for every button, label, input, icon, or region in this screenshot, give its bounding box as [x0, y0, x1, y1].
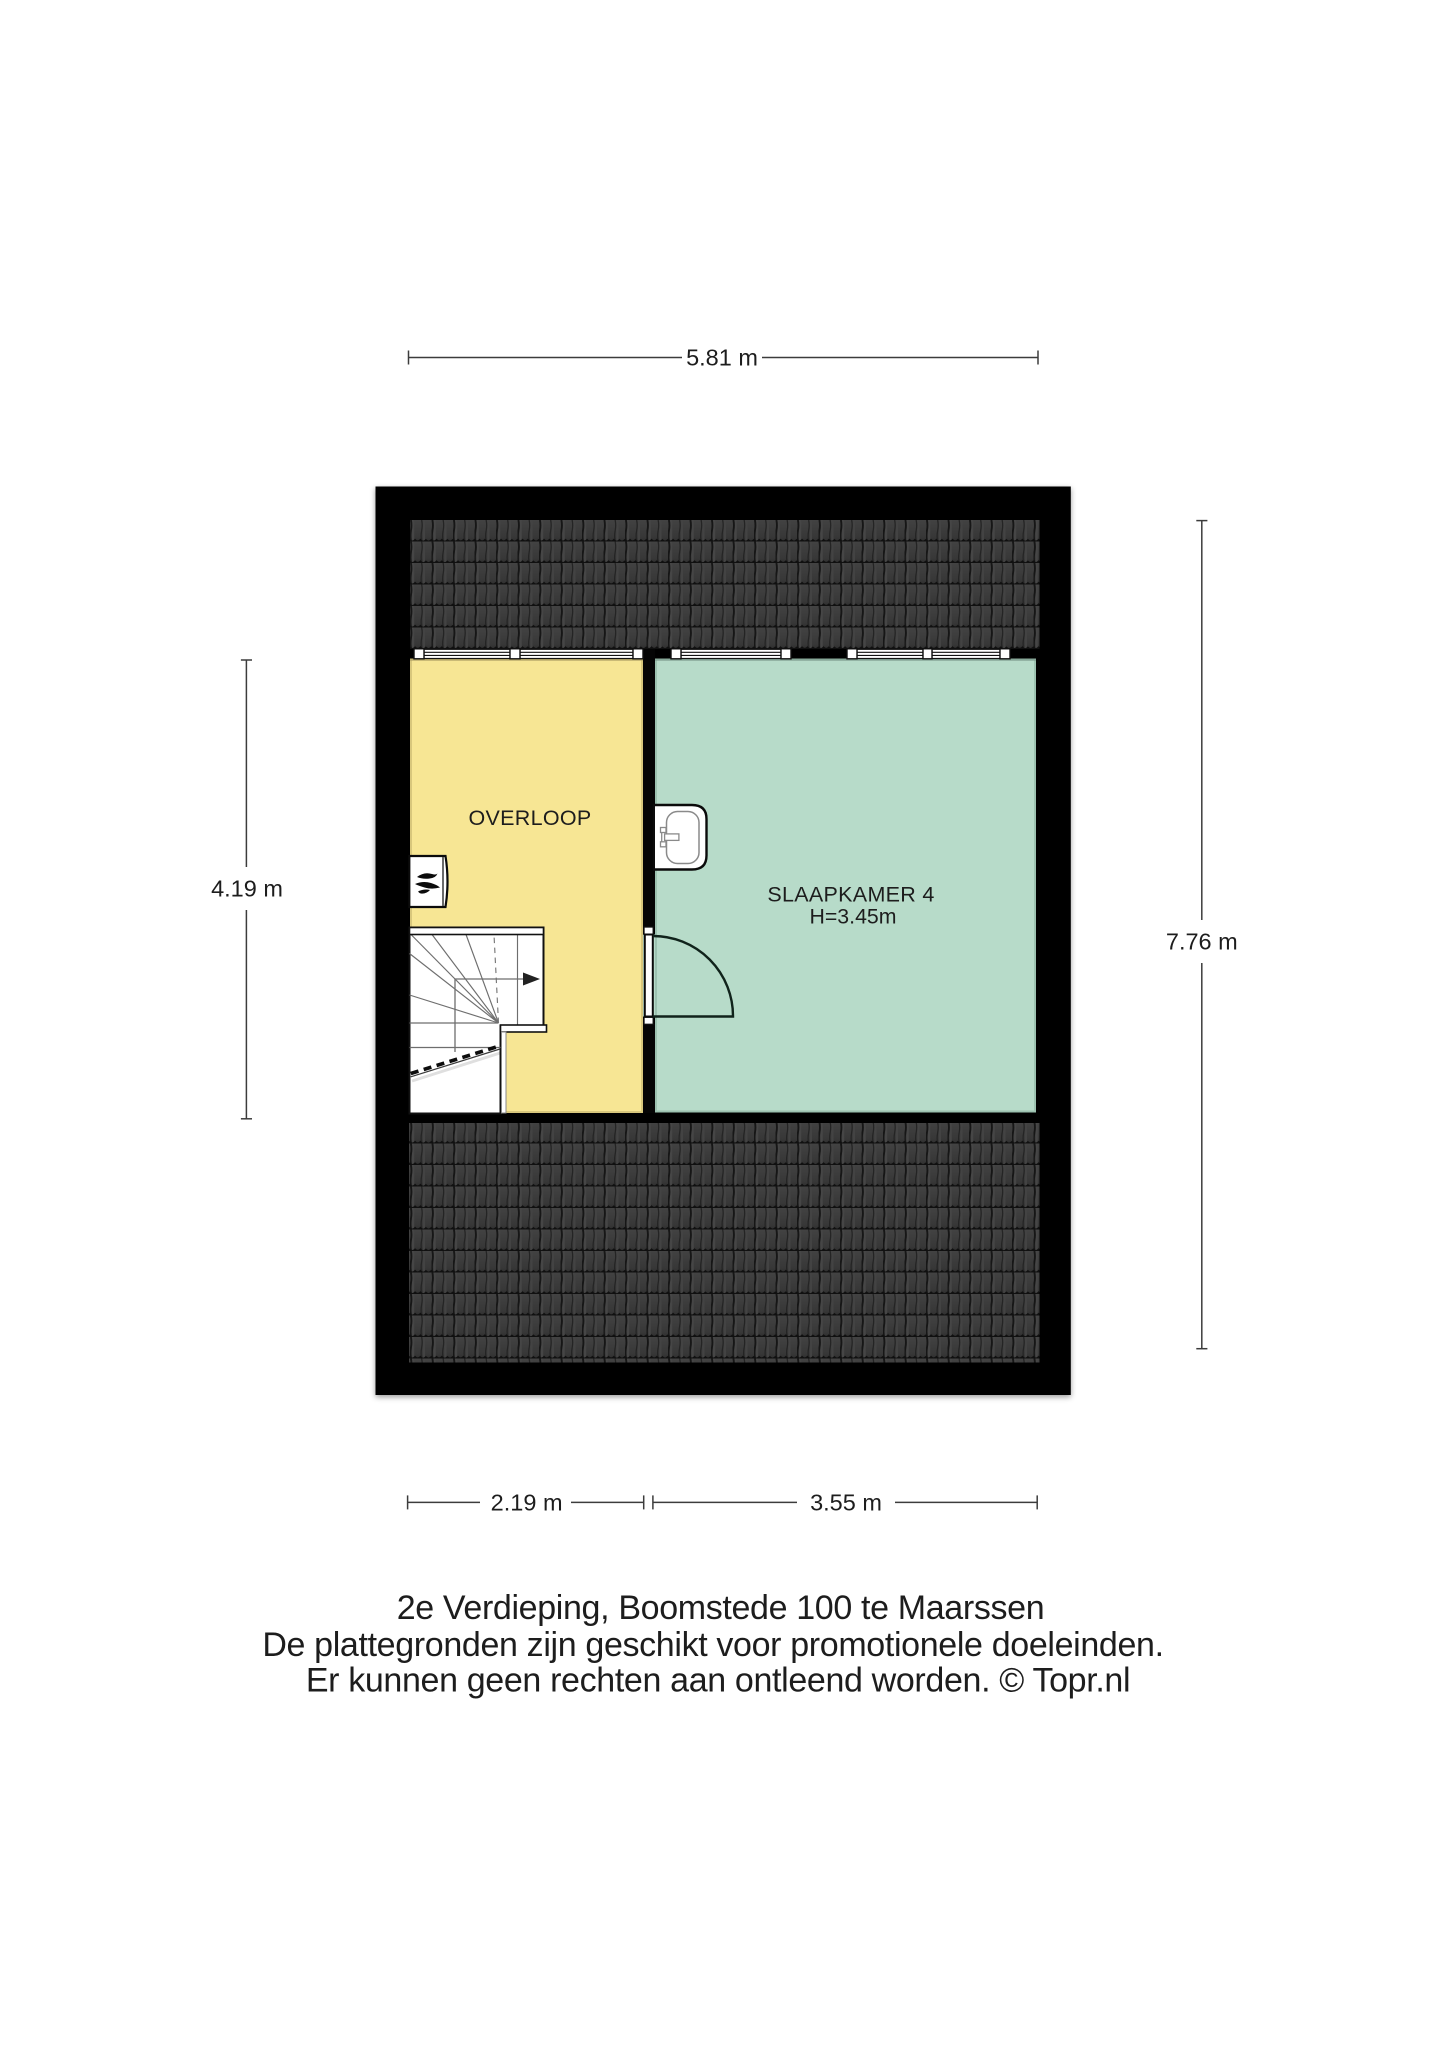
- svg-text:2e Verdieping, Boomstede 100 t: 2e Verdieping, Boomstede 100 te Maarssen: [397, 1589, 1045, 1627]
- svg-text:De plattegronden zijn geschikt: De plattegronden zijn geschikt voor prom…: [262, 1626, 1163, 1664]
- svg-text:4.19 m: 4.19 m: [211, 876, 283, 902]
- svg-text:Er kunnen geen rechten aan ont: Er kunnen geen rechten aan ontleend word…: [306, 1662, 1130, 1700]
- svg-text:7.76 m: 7.76 m: [1166, 929, 1238, 955]
- svg-text:2.19 m: 2.19 m: [491, 1489, 563, 1515]
- svg-text:H=3.45m: H=3.45m: [809, 905, 896, 929]
- svg-text:5.81 m: 5.81 m: [686, 345, 758, 371]
- svg-text:SLAAPKAMER 4: SLAAPKAMER 4: [767, 883, 934, 907]
- svg-text:OVERLOOP: OVERLOOP: [468, 806, 591, 830]
- svg-text:3.55 m: 3.55 m: [810, 1489, 882, 1515]
